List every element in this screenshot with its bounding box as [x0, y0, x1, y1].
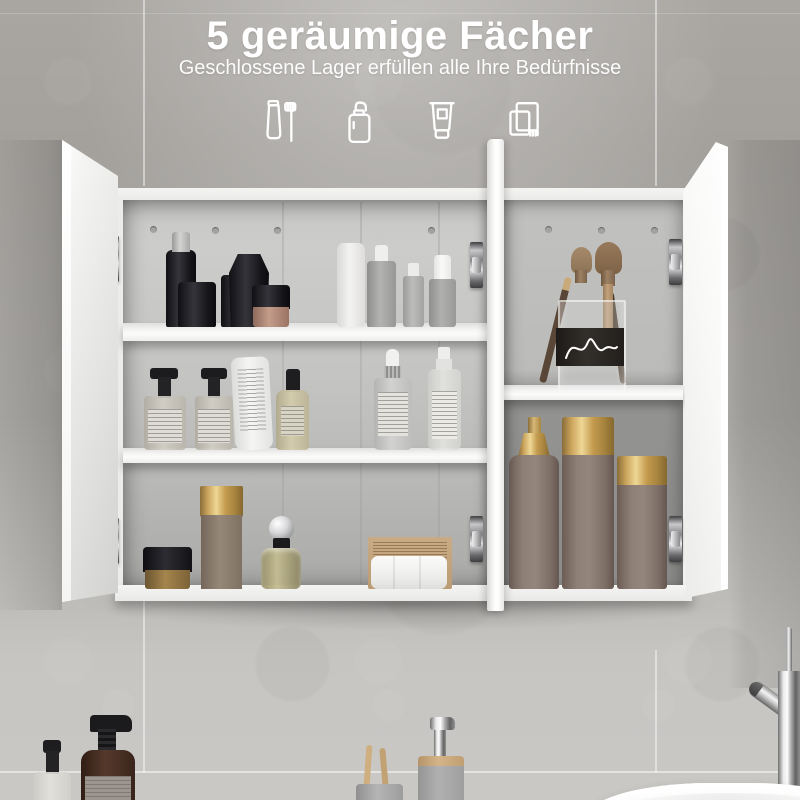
- shelf-pin-hole: [150, 226, 157, 233]
- rolled-towel: [371, 556, 447, 589]
- gold-cap-short: [617, 456, 667, 487]
- black-jar: [178, 282, 216, 327]
- door-edge: [62, 138, 71, 602]
- right-door-open: [683, 142, 728, 598]
- clear-pump-bottle: [195, 396, 233, 450]
- pump-stem: [208, 377, 220, 398]
- taupe-pump-bottle: [509, 455, 559, 589]
- shelf-pin-hole: [545, 226, 552, 233]
- product-image: 5 geräumige Fächer Geschlossene Lager er…: [0, 0, 800, 800]
- clear-spray-bottle: [428, 369, 461, 450]
- amber-soap-bottle: [81, 750, 135, 800]
- faucet-handle: [786, 627, 792, 675]
- black-copper-jar-lid: [252, 285, 290, 309]
- dropper-bottle: [374, 378, 412, 450]
- spray-cap-black: [46, 751, 59, 774]
- taupe-bottle-tall: [562, 455, 614, 589]
- shelf-pin-hole: [651, 227, 658, 234]
- taupe-bottle-short: [617, 485, 667, 589]
- towel-fold: [419, 556, 421, 589]
- page-title: 5 geräumige Fächer: [0, 14, 800, 58]
- middle-door-open: [487, 139, 504, 611]
- dispenser-pump-stem: [434, 727, 446, 759]
- white-tube-leaning: [231, 356, 274, 451]
- toothpaste-toothbrush-icon: [260, 99, 298, 145]
- amber-spray-bottle: [276, 390, 309, 450]
- wall-shade-right: [728, 140, 800, 688]
- white-tube: [337, 243, 365, 327]
- faucet-body: [778, 671, 800, 800]
- bottle-label: [432, 391, 457, 439]
- soap-label: [85, 776, 131, 800]
- bottle-label: [198, 409, 230, 443]
- taupe-square-bottle: [201, 515, 242, 589]
- toothbrush-cup: [356, 784, 403, 800]
- door-hinge: [470, 242, 483, 288]
- label-script: [556, 328, 624, 366]
- gold-cap: [200, 486, 243, 517]
- gold-cap-tall: [562, 417, 614, 457]
- bottle-label: [378, 392, 408, 436]
- clear-pump-bottle: [144, 396, 186, 450]
- left-door-open: [62, 138, 118, 602]
- grey-spray-bottle: [367, 261, 396, 327]
- brush-cup-label: [556, 328, 624, 366]
- sink-basin: [598, 793, 800, 800]
- tube-label: [237, 368, 266, 431]
- black-bottle-cap: [172, 232, 190, 252]
- door-hinge: [470, 516, 483, 562]
- dispenser-pump-spout: [430, 717, 455, 730]
- grey-bottle: [429, 279, 456, 327]
- shelf-pin-hole: [212, 227, 219, 234]
- clear-spray-bottle-counter: [33, 772, 71, 800]
- door-edge: [721, 142, 728, 598]
- black-gold-jar-base: [145, 570, 190, 589]
- shelf-pin-hole: [428, 227, 435, 234]
- cream-tube-icon: [425, 99, 459, 145]
- page-subtitle: Geschlossene Lager erfüllen alle Ihre Be…: [0, 57, 800, 80]
- pump-stem: [158, 377, 171, 398]
- wall-shade-left: [0, 140, 62, 610]
- grey-pump-bottle: [403, 276, 424, 327]
- white-cap: [434, 255, 451, 281]
- soap-dispenser-grey: [418, 766, 464, 800]
- black-gold-jar-lid: [143, 547, 192, 572]
- towel-icon: [504, 99, 542, 145]
- towel-fold: [393, 556, 395, 589]
- door-hinge: [669, 516, 682, 562]
- black-copper-jar-base: [253, 307, 289, 327]
- shelf-left-lower: [123, 448, 487, 463]
- shelf-pin-hole: [598, 227, 605, 234]
- perfume-bottle: [261, 548, 301, 589]
- shelf-pin-hole: [274, 227, 281, 234]
- bottle-label: [281, 406, 304, 436]
- door-hinge: [669, 239, 682, 285]
- spray-cap-black: [286, 369, 300, 392]
- soap-dispenser-icon: [343, 99, 379, 145]
- bottle-label: [148, 409, 182, 443]
- tile-grout: [655, 650, 657, 772]
